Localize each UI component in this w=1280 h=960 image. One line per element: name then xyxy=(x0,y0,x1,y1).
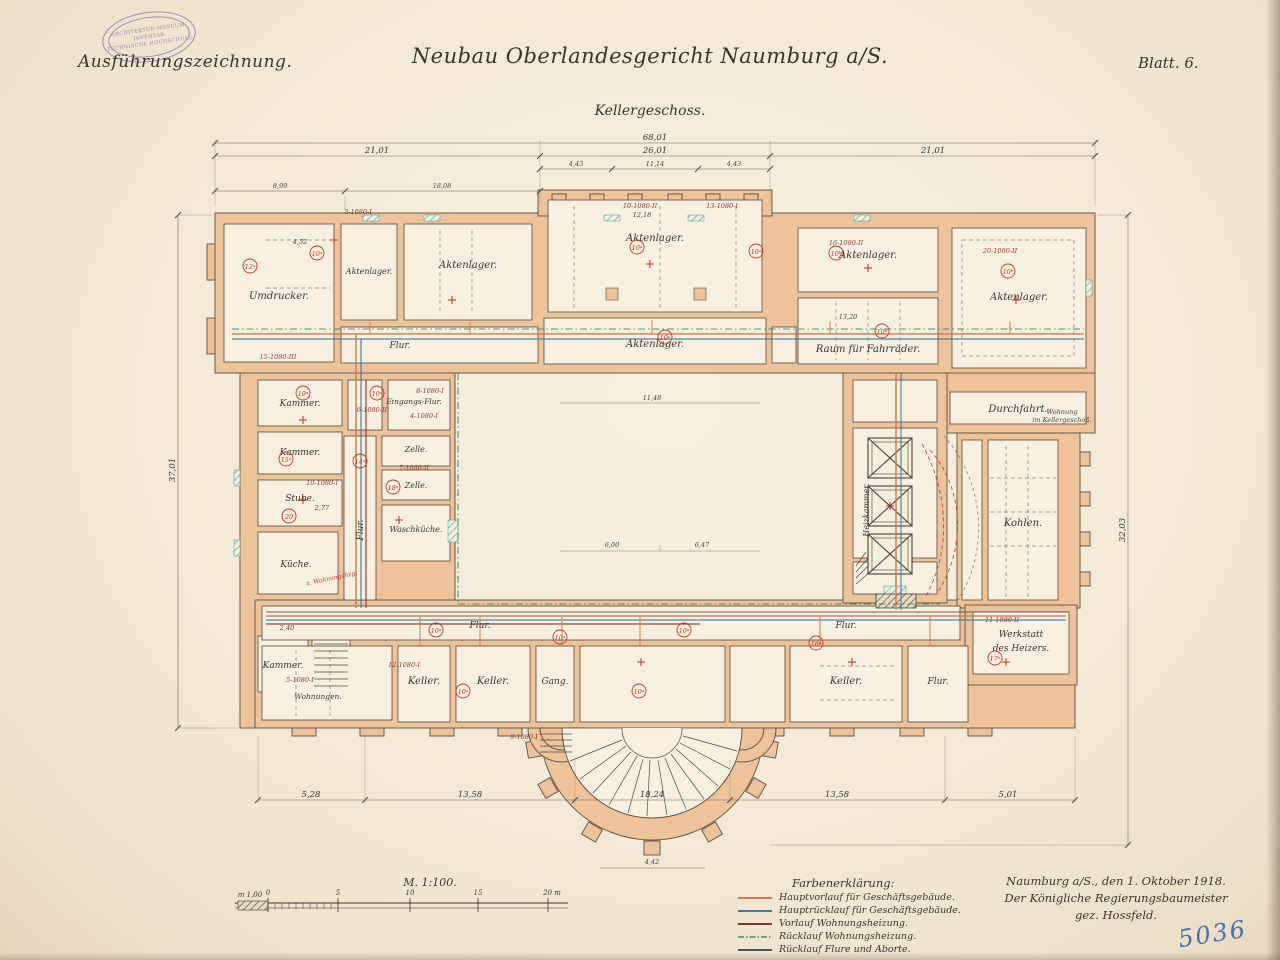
marker-label: 10ᵃ xyxy=(555,634,566,642)
marker-label: 16ᵃ xyxy=(811,640,822,648)
room-code: 11-1080-II xyxy=(985,616,1020,624)
scale-ratio-label: M. 1:100. xyxy=(360,876,500,889)
scale-tick: 10 xyxy=(406,889,415,897)
room-label: Keller. xyxy=(476,676,509,687)
dim-label: 11,48 xyxy=(643,394,662,402)
room-label: Kammer. xyxy=(279,399,321,409)
dim-label: 12,18 xyxy=(633,211,652,219)
room-code: 13-1080-I xyxy=(706,202,738,210)
marker-label: 10ᵃ xyxy=(679,627,690,635)
marker-label: 19ᵃ xyxy=(298,390,309,398)
marker-label: 15ᵃ xyxy=(281,456,292,464)
room-label: Stube. xyxy=(285,494,315,504)
room-label: Zelle. xyxy=(404,481,428,490)
room-label: Werkstatt xyxy=(999,630,1044,640)
room-label: Keller. xyxy=(407,676,440,687)
wing-note-line2: im Kellergeschoß. xyxy=(1032,416,1091,424)
room-label: Kohlen. xyxy=(1003,518,1042,529)
room-label: Wohnungen. xyxy=(294,692,342,701)
dim-label: 13,58 xyxy=(458,790,483,800)
marker-label: 10ᵇ xyxy=(831,250,842,258)
dim-label: 32,03 xyxy=(1118,518,1128,542)
scale-bar[interactable] xyxy=(235,898,568,912)
room-label: Keller. xyxy=(829,676,862,687)
marker-label: 18ᵃ xyxy=(388,484,399,492)
dim-label: 4,52 xyxy=(292,238,307,246)
room-label: Waschküche. xyxy=(390,525,443,534)
dim-label: 6,00 xyxy=(605,541,619,549)
marker-label: 10ᵃ xyxy=(458,688,469,696)
marker-label: 12ᵃ xyxy=(245,263,256,271)
room-label: Heizkammer. xyxy=(862,483,871,538)
room-label: Eingangs-Flur. xyxy=(385,397,442,406)
dim-label: 18,08 xyxy=(433,182,452,190)
marker-label: 17ᵃ xyxy=(990,655,1001,663)
dim-label: 2,40 xyxy=(279,624,294,632)
dim-label: 18,24 xyxy=(640,790,664,800)
room-label: Raum für Fahrräder. xyxy=(815,344,920,355)
room-label: Gang. xyxy=(542,677,569,687)
room-code: 5-1080-I xyxy=(286,676,314,684)
marker-label: 10ᵃ xyxy=(372,390,383,398)
marker-label: 10ᵃ xyxy=(634,688,645,696)
marker-label: 14ᵃ xyxy=(355,458,366,466)
scale-tick: 20 m xyxy=(542,889,561,897)
marker-label: 10ᵇ xyxy=(1003,268,1014,276)
room-code: 15-1080-III xyxy=(260,353,297,361)
marker-label: 10ᵃ xyxy=(660,334,671,342)
legend-swatch-hauptvorlauf xyxy=(737,895,773,901)
room-code: 10-1080-II xyxy=(623,202,658,210)
marker-label: 10ᵇ xyxy=(877,328,888,336)
room-label: Aktenlager. xyxy=(438,260,497,271)
dim-label: 13,20 xyxy=(839,313,858,321)
floor-plan: m 1,00 0 5 10 15 20 m Umdrucker. Aktenla… xyxy=(0,0,1280,960)
dim-label: 26,01 xyxy=(642,146,667,156)
room-label: Flur. xyxy=(468,621,490,631)
legend-label: Rücklauf Wohnungsheizung. xyxy=(779,931,916,942)
legend-item: Hauptrücklauf für Geschäftsgebäude. xyxy=(737,904,1007,917)
scan-edge-shadow-right xyxy=(1266,0,1280,960)
room-label: Aktenlager. xyxy=(989,292,1048,303)
dim-label: 2,77 xyxy=(314,504,330,512)
scale-tick: m 1,00 xyxy=(238,891,263,899)
marker-label: 10ᵃ xyxy=(632,244,643,252)
dim-label: 8,99 xyxy=(273,182,287,190)
room-label: Aktenlager. xyxy=(625,339,684,350)
legend-label: Vorlauf Wohnungsheizung. xyxy=(779,918,908,929)
scan-edge-shadow-bottom xyxy=(0,952,1280,960)
legend-label: Hauptrücklauf für Geschäftsgebäude. xyxy=(779,905,961,916)
legend-swatch-hauptruecklauf xyxy=(737,908,773,914)
dim-label: 13,58 xyxy=(825,790,850,800)
signature-role: Der Königliche Regierungsbaumeister xyxy=(1002,890,1230,907)
dim-label: 6,47 xyxy=(695,541,710,549)
legend-item: Hauptvorlauf für Geschäftsgebäude. xyxy=(737,891,1007,904)
dim-label: 4,42 xyxy=(644,858,659,866)
legend-title: Farbenerklärung: xyxy=(792,876,1007,890)
dim-label: 4,43 xyxy=(568,160,583,168)
marker-label: 20 xyxy=(284,513,293,521)
marker-label: 10ᵃ xyxy=(751,248,762,256)
dim-label: 21,01 xyxy=(920,146,945,156)
room-code: 20-1080-II xyxy=(982,247,1018,255)
room-code: 3-1080-I xyxy=(344,208,372,216)
signature-block: Naumburg a/S., den 1. Oktober 1918. Der … xyxy=(1002,873,1230,924)
drawing-sheet: ARCHITEKTUR-MUSEUM INVENTAR TECHNISCHE H… xyxy=(0,0,1280,960)
room-label: Flur. xyxy=(388,341,410,351)
dim-label: 4,43 xyxy=(726,160,741,168)
scale-tick: 0 xyxy=(266,889,271,897)
scale-tick: 15 xyxy=(474,889,483,897)
room-label: Aktenlager. xyxy=(345,267,392,276)
wing-note-line1: Wohnung xyxy=(1046,408,1077,416)
room-label: Zelle. xyxy=(404,445,428,454)
room-code: 6-1080-II xyxy=(357,406,388,414)
dim-label: 68,01 xyxy=(643,133,667,143)
scale-tick-labels: m 1,00 0 5 10 15 20 m xyxy=(238,889,561,899)
dim-label: 21,01 xyxy=(364,146,389,156)
room-code: 7-1080-II xyxy=(399,464,430,472)
room-code: 8-1080-I xyxy=(416,387,444,395)
room-label: Durchfahrt. xyxy=(987,404,1047,415)
marker-label: 10ᵃ xyxy=(431,627,442,635)
room-label: Küche. xyxy=(279,560,311,570)
room-label: Kammer. xyxy=(262,661,304,671)
dim-label: 5,01 xyxy=(999,790,1018,800)
scale-tick: 5 xyxy=(336,889,341,897)
legend-item: Rücklauf Wohnungsheizung. xyxy=(737,930,1007,943)
room-label: Flur. xyxy=(356,519,366,541)
legend-item: Vorlauf Wohnungsheizung. xyxy=(737,917,1007,930)
room-label: Umdrucker. xyxy=(249,291,309,302)
legend-swatch-ruecklauf-wohnung xyxy=(737,934,773,940)
marker-label: 10ᵃ xyxy=(312,250,323,258)
signature-place-date: Naumburg a/S., den 1. Oktober 1918. xyxy=(1002,873,1230,890)
room-label: Flur. xyxy=(926,677,948,687)
dim-label: 5,28 xyxy=(302,790,322,800)
room-label: Flur. xyxy=(834,621,856,631)
room-label: Aktenlager. xyxy=(625,233,684,244)
room-code: 16-1080-II xyxy=(829,239,864,247)
dim-label: 11,14 xyxy=(646,160,665,168)
room-code: 10-1080-I xyxy=(306,479,338,487)
room-code: 9-1080-I xyxy=(510,733,538,741)
room-label: Aktenlager. xyxy=(838,250,897,261)
room-code: 12-1080-I xyxy=(388,661,420,669)
room-label: des Heizers. xyxy=(993,644,1050,654)
room-code: 4-1080-I xyxy=(409,412,438,420)
color-legend: Farbenerklärung: Hauptvorlauf für Geschä… xyxy=(737,876,1007,956)
dim-label: 37,01 xyxy=(168,458,178,482)
legend-label: Hauptvorlauf für Geschäftsgebäude. xyxy=(779,892,955,903)
legend-swatch-vorlauf-wohnung xyxy=(737,921,773,927)
